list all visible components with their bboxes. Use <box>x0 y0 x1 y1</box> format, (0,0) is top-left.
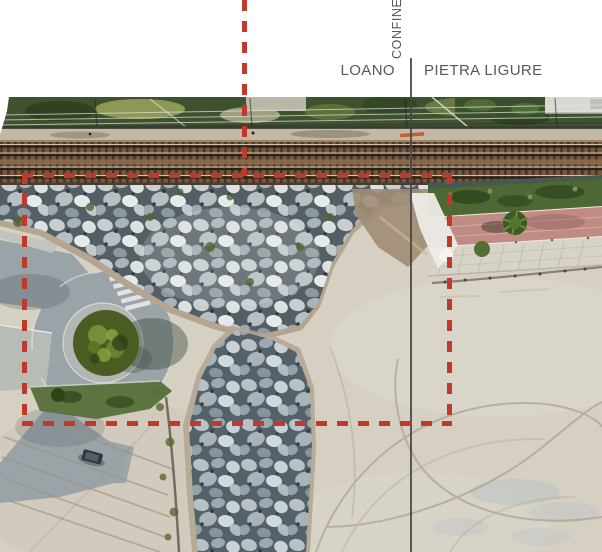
region-label-loano: LOANO <box>325 62 395 79</box>
region-label-pietra-ligure: PIETRA LIGURE <box>424 62 543 79</box>
aerial-photo <box>0 97 602 552</box>
highlight-rect-right-edge <box>447 173 452 426</box>
boundary-extension-dashed-line <box>242 0 247 176</box>
highlight-rect-top-edge <box>22 173 452 178</box>
municipal-boundary-line <box>410 58 412 552</box>
highlight-rect-bottom-edge <box>22 421 452 426</box>
highlight-rect-left-edge <box>22 173 27 426</box>
boundary-label-confine: CONFINE <box>390 3 404 59</box>
map-figure: CONFINE LOANO PIETRA LIGURE <box>0 0 602 552</box>
